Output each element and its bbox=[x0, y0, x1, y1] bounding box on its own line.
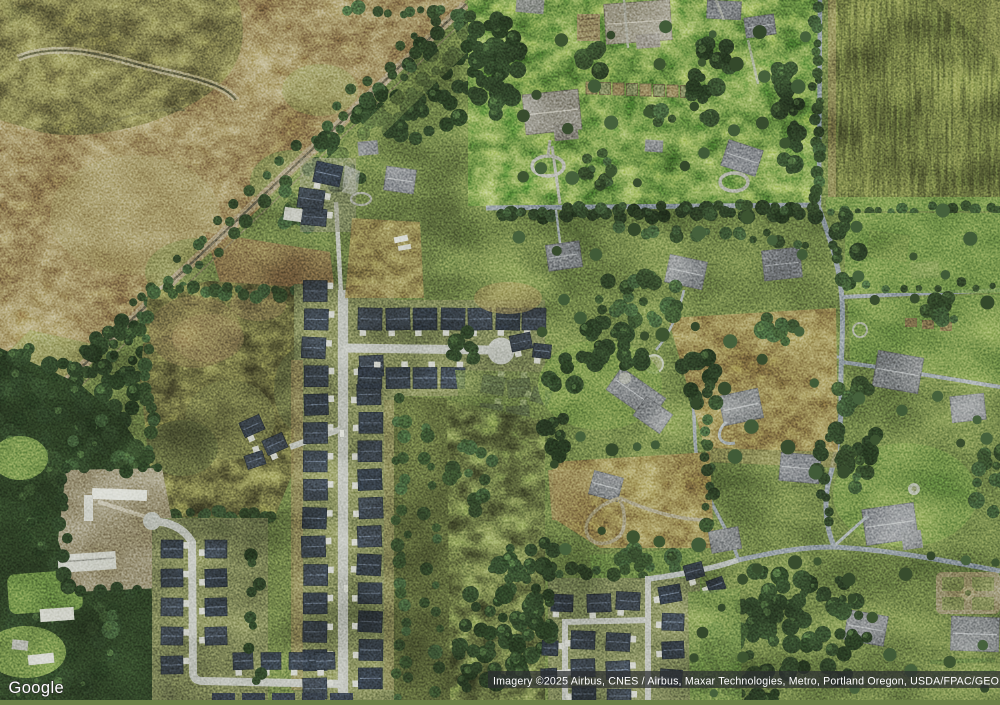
svg-text:Google: Google bbox=[9, 679, 65, 697]
svg-text:Imagery ©2025 Airbus, CNES / A: Imagery ©2025 Airbus, CNES / Airbus, Max… bbox=[493, 676, 999, 688]
